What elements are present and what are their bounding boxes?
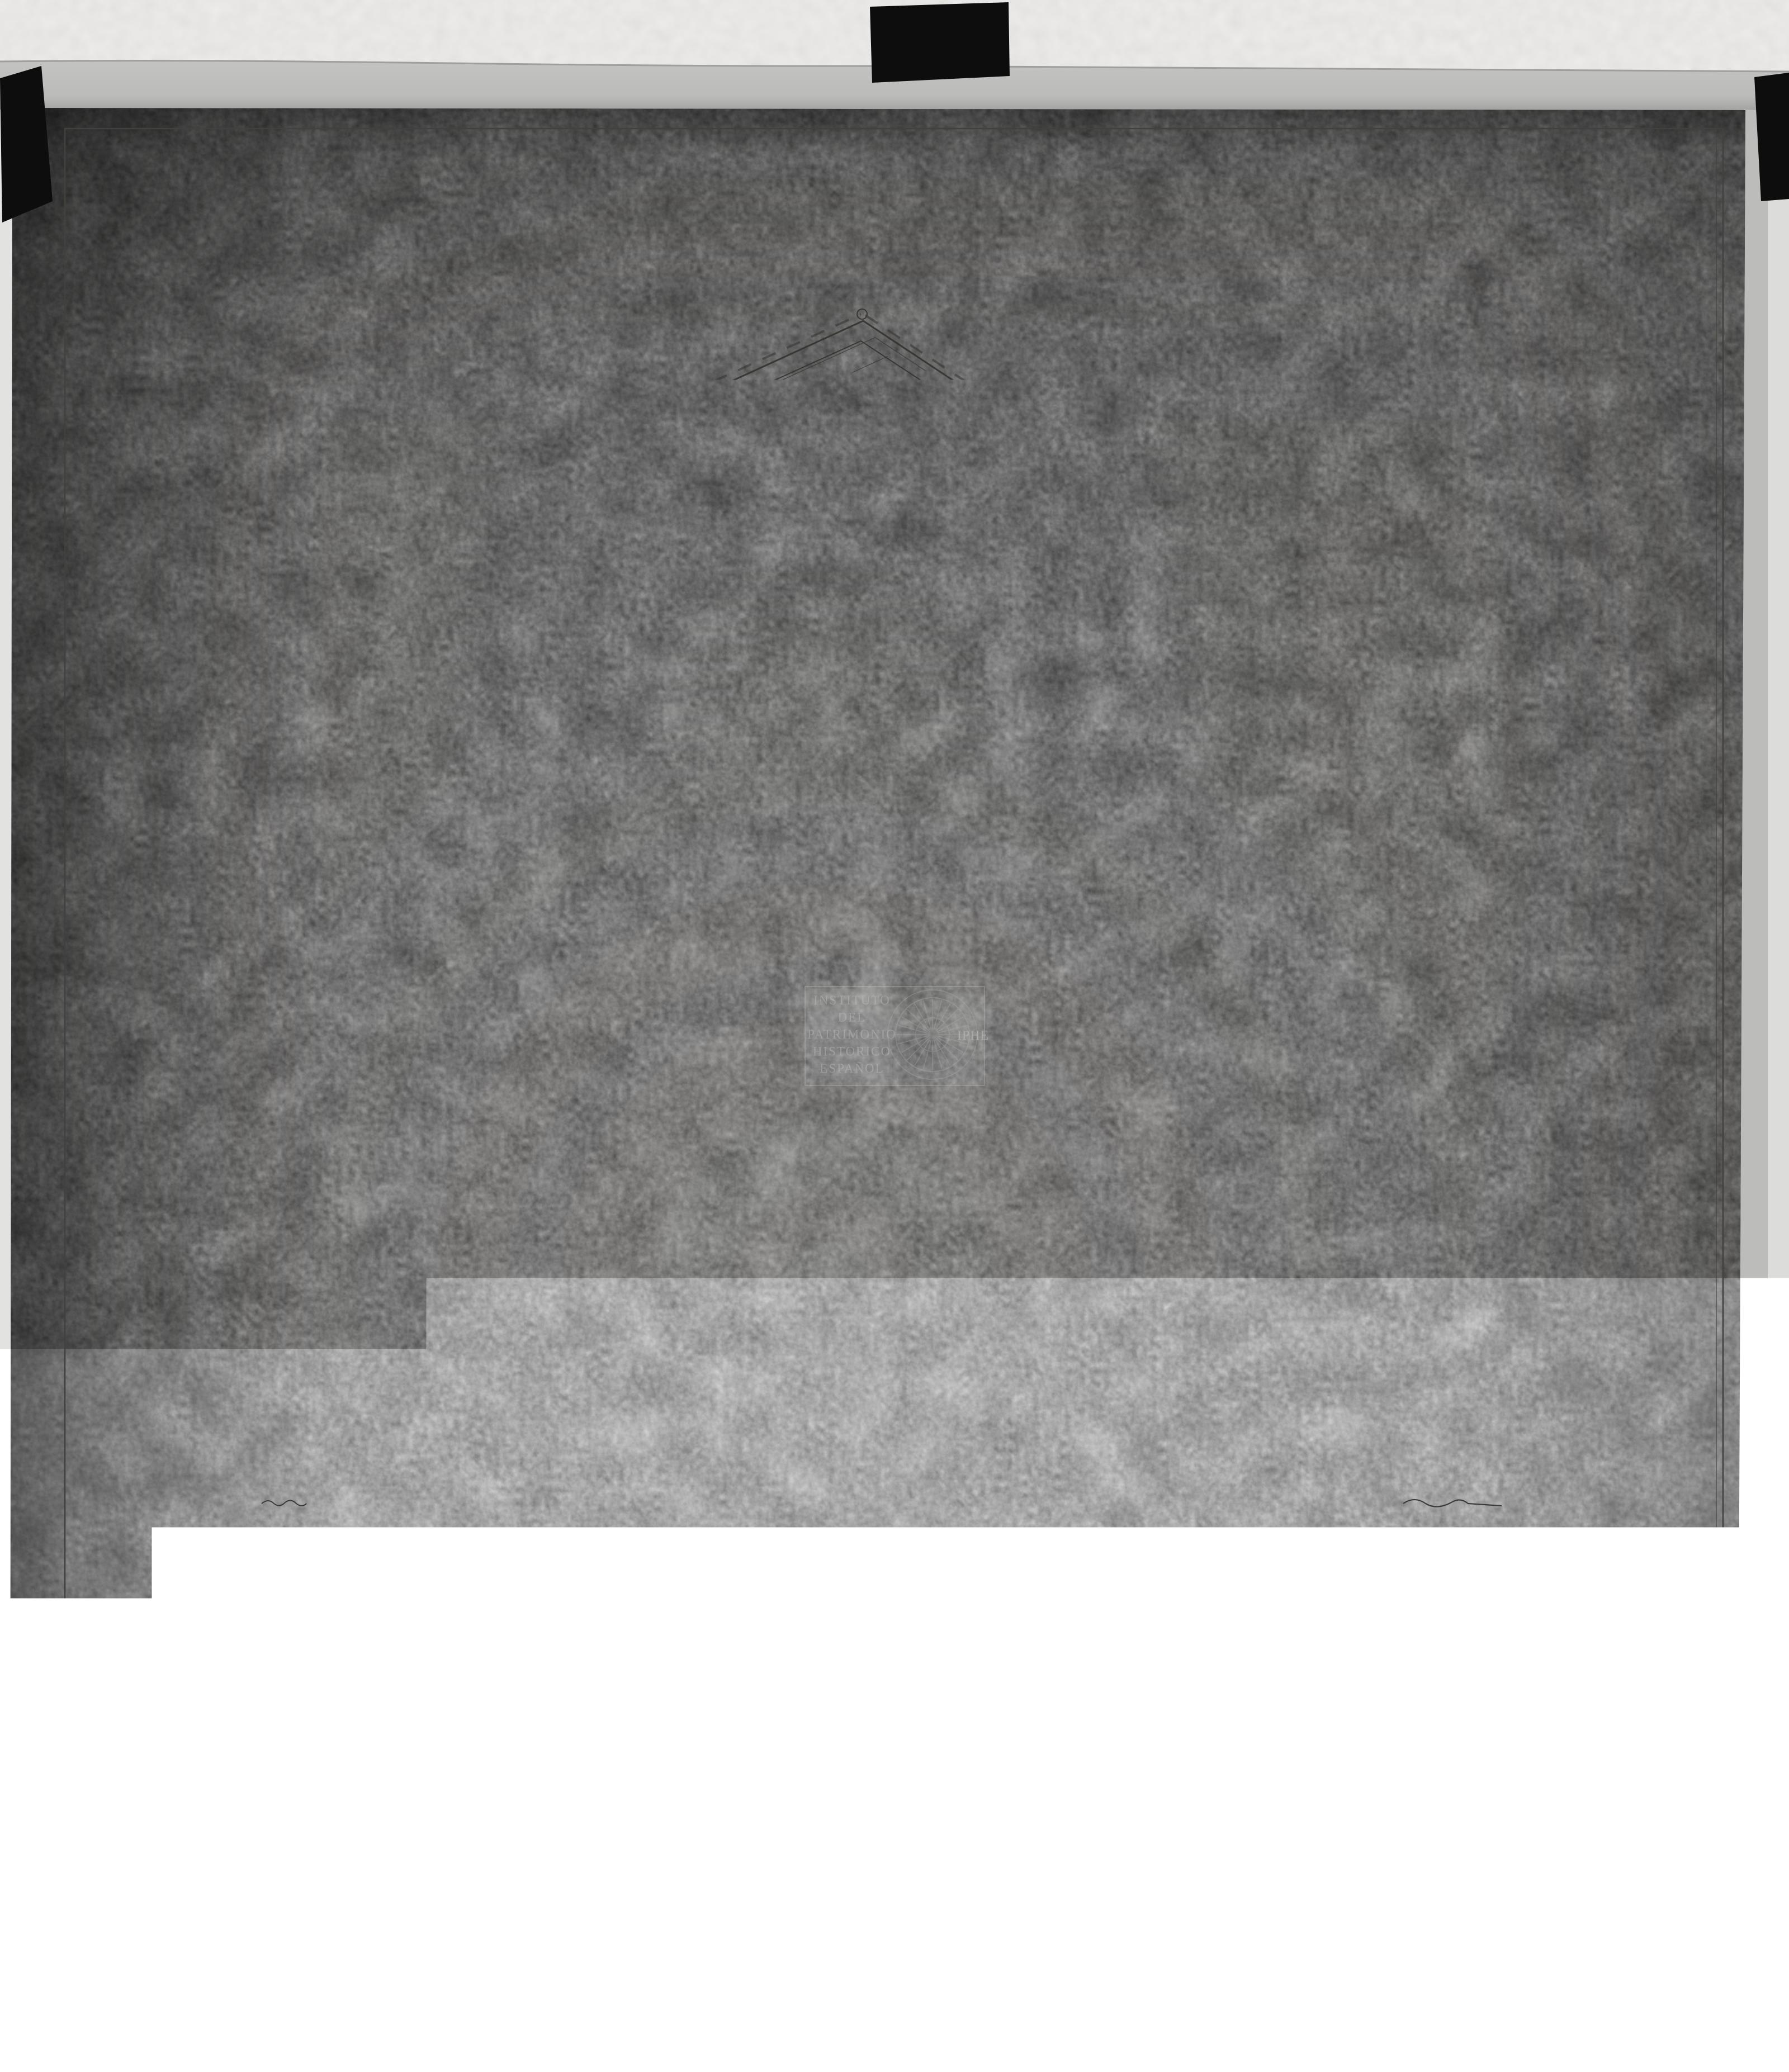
svg-text:( Siglo IX ): ( Siglo IX )	[1552, 1778, 1640, 1799]
svg-text:C: C	[1021, 1935, 1033, 1954]
svg-text:5: 5	[896, 1975, 902, 1988]
svg-text:18: 18	[1688, 1847, 1707, 1865]
svg-text:M: M	[936, 1973, 947, 1988]
svg-text:A: A	[788, 1974, 798, 1989]
svg-text:2: 2	[832, 1975, 839, 1988]
svg-text:PATRIMONIO: PATRIMONIO	[807, 1027, 897, 1041]
svg-text:ESPAÑOL: ESPAÑOL	[820, 1061, 884, 1075]
svg-text:12: 12	[1042, 1974, 1054, 1986]
svg-text:Lorenzo Arias Páramo: Lorenzo Arias Páramo	[1339, 1775, 1444, 1787]
svg-text:9: 9	[981, 1974, 987, 1986]
svg-text:Organismo promotor: CONSEJERIA: Organismo promotor: CONSEJERIA DE EDUCAC…	[1310, 1712, 1719, 1724]
svg-text:Escala:: Escala:	[1309, 1804, 1346, 1816]
svg-text:1: 1	[811, 1976, 817, 1988]
svg-text:Lorenzo Arias/87: Lorenzo Arias/87	[1446, 1365, 1457, 1445]
svg-text:Y: Y	[1054, 1935, 1065, 1953]
svg-text:KODAK Gray Scale: KODAK Gray Scale	[837, 1942, 988, 1962]
svg-text:18: 18	[1169, 1973, 1181, 1985]
svg-text:8: 8	[960, 1975, 966, 1987]
svg-text:19: 19	[1190, 1973, 1203, 1985]
svg-text:B: B	[1128, 1971, 1138, 1986]
svg-text:11: 11	[1021, 1974, 1032, 1986]
svg-text:Kodak: Kodak	[1158, 1930, 1205, 1947]
svg-text:Descripción:: Descripción:	[1369, 1804, 1430, 1816]
svg-text:4: 4	[875, 1975, 881, 1988]
svg-text:N°Registro: N°Registro	[1609, 1804, 1663, 1816]
svg-text:SECCION TRANSVERSAL POR LAS NA: SECCION TRANSVERSAL POR LAS NAVES	[1375, 1822, 1588, 1833]
svg-text:Nºplanos: Nºplanos	[1608, 1834, 1649, 1846]
svg-text:Fecha: Noviembre 1987: Fecha: Noviembre 1987	[1308, 1787, 1422, 1799]
svg-text:1:20: 1:20	[1315, 1819, 1337, 1832]
svg-text:PRINCIPADO DE ASTURIAS.: PRINCIPADO DE ASTURIAS.	[1432, 1725, 1578, 1737]
svg-text:17: 17	[1148, 1973, 1160, 1985]
svg-text:18: 18	[1624, 1850, 1636, 1862]
svg-text:15: 15	[1105, 1974, 1118, 1986]
svg-text:13: 13	[1063, 1974, 1075, 1986]
svg-text:INSTITUTO: INSTITUTO	[813, 993, 891, 1007]
svg-text:6: 6	[917, 1975, 924, 1987]
svg-text:10: 10	[999, 1974, 1011, 1986]
svg-text:© The Tiffen Company, 2000: © The Tiffen Company, 2000	[803, 1925, 892, 1933]
svg-text:y dibujo:: y dibujo:	[1309, 1763, 1349, 1775]
svg-text:Estudio planimétrico: Estudio planimétrico	[1309, 1751, 1405, 1762]
svg-text:SERVICIO DEL PATRIMONIO HISTOR: SERVICIO DEL PATRIMONIO HISTORICO-ARTIST…	[1431, 1737, 1694, 1748]
svg-text:DEL: DEL	[838, 1011, 867, 1025]
svg-text:3: 3	[854, 1975, 860, 1988]
svg-text:PLANO Nº: PLANO Nº	[1655, 1834, 1703, 1846]
svg-text:NORTE Y SUR HACIA EL OESTE: NORTE Y SUR HACIA EL OESTE	[1400, 1836, 1560, 1847]
svg-text:14: 14	[1084, 1974, 1096, 1986]
svg-text:IPHE: IPHE	[957, 1028, 989, 1043]
svg-text:HISTORICO: HISTORICO	[813, 1045, 891, 1059]
svg-text:LICENSED PRODUCT: LICENSED PRODUCT	[1154, 1948, 1217, 1955]
svg-text:M: M	[1085, 1935, 1099, 1953]
svg-text:Iglesia de San Miguel de Liño: Iglesia de San Miguel de Liño	[1461, 1753, 1716, 1775]
